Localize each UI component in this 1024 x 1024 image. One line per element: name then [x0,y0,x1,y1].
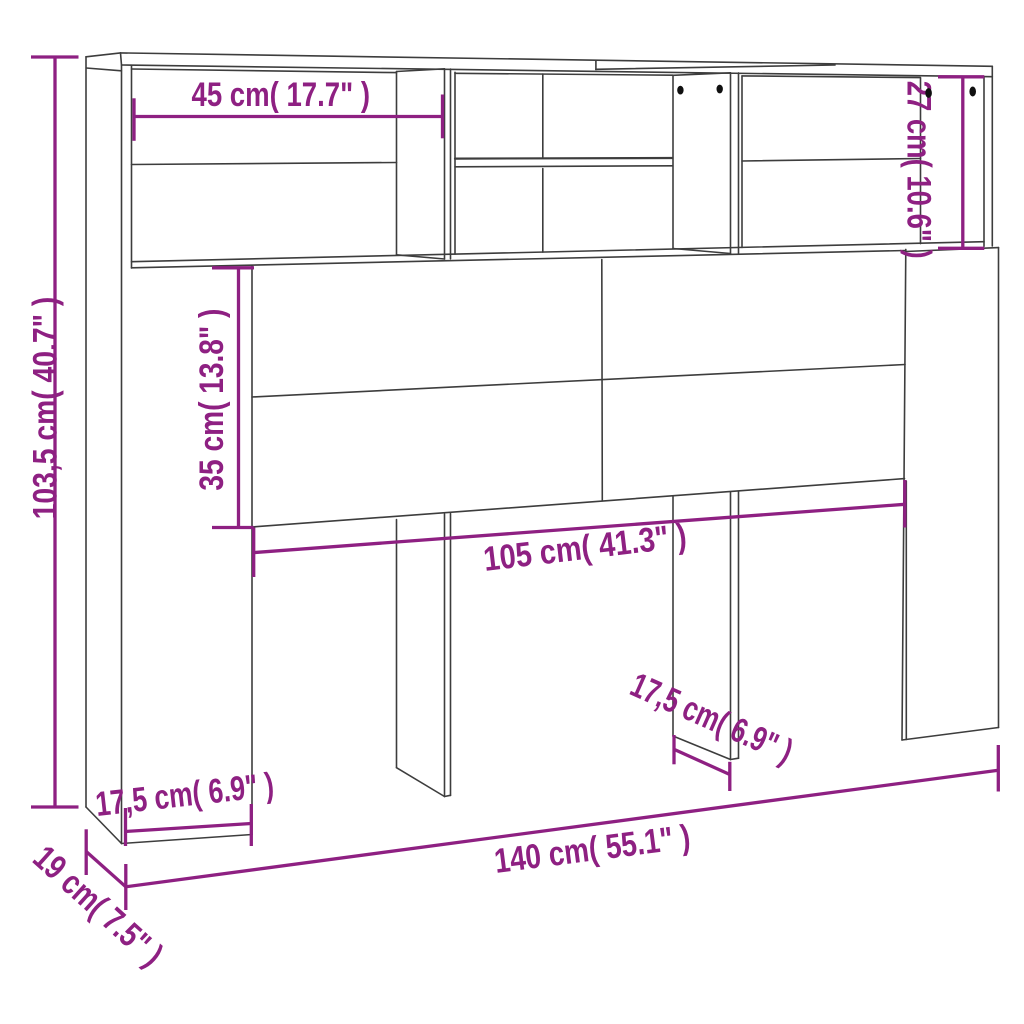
svg-text:45 cm( 17.7" ): 45 cm( 17.7" ) [192,76,371,114]
svg-text:27 cm( 10.6" ): 27 cm( 10.6" ) [900,81,938,259]
svg-text:35 cm( 13.8" ): 35 cm( 13.8" ) [193,309,231,491]
svg-text:103,5 cm( 40.7" ): 103,5 cm( 40.7" ) [27,297,65,520]
